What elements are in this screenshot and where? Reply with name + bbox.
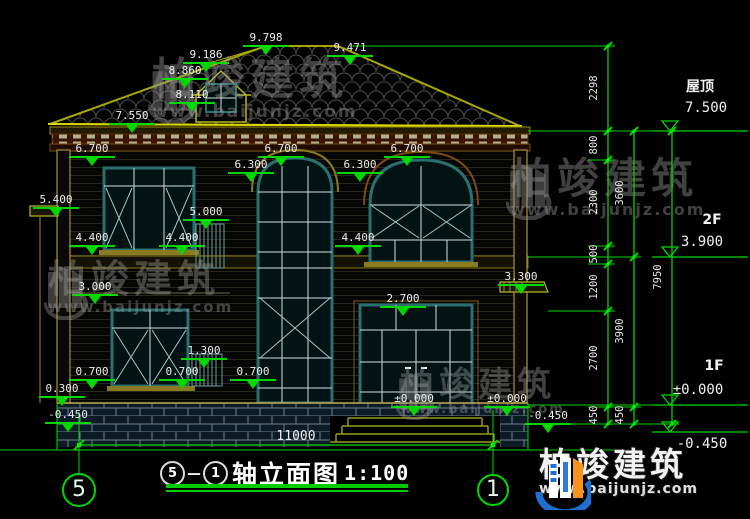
elevation-marker: 9.798 [231, 32, 301, 55]
elevation-marker: 8.860 [150, 65, 220, 88]
elevation-value: ±0.000 [394, 392, 434, 405]
elevation-value: 5.000 [189, 205, 222, 218]
chain-dimension-value: 7950 [652, 245, 664, 309]
marker-triangle-icon [126, 125, 138, 133]
marker-triangle-icon [179, 80, 191, 88]
elevation-value: 4.400 [341, 231, 374, 244]
elevation-marker: 3.300 [486, 271, 556, 294]
elevation-value: 1.300 [187, 344, 220, 357]
marker-triangle-icon [89, 296, 101, 304]
drawing-scale: 1:100 [344, 461, 409, 485]
elevation-value: 2.700 [386, 292, 419, 305]
elevation-marker: 0.300 [27, 383, 97, 406]
elevation-marker: 6.300 [325, 159, 395, 182]
elevation-marker: 4.400 [147, 232, 217, 255]
marker-triangle-icon [354, 174, 366, 182]
elevation-value: 6.300 [234, 158, 267, 171]
elevation-marker: 6.700 [57, 143, 127, 166]
level-elevation: ±0.000 [656, 382, 740, 398]
marker-triangle-icon [542, 425, 554, 433]
elevation-marker: 5.000 [171, 206, 241, 229]
marker-triangle-icon [50, 209, 62, 217]
elevation-value: 6.700 [75, 142, 108, 155]
elevation-marker: 8.110 [157, 89, 227, 112]
marker-triangle-icon [62, 424, 74, 432]
marker-triangle-icon [245, 174, 257, 182]
marker-triangle-icon [515, 286, 527, 294]
overall-dimension: 11000 [246, 429, 346, 444]
elevation-value: -0.450 [528, 409, 568, 422]
level-name: 屋顶 [664, 76, 736, 96]
marker-triangle-icon [176, 247, 188, 255]
cad-elevation-sheet: 柏竣建筑 www.baijunjz.com 柏竣建筑 www.baijunjz.… [0, 0, 750, 519]
elevation-marker: 2.700 [368, 293, 438, 316]
elevation-marker: 3.000 [60, 281, 130, 304]
marker-triangle-icon [344, 57, 356, 65]
marker-triangle-icon [86, 158, 98, 166]
title-underline-thin [166, 490, 408, 492]
elevation-marker: ±0.000 [379, 393, 449, 416]
level-elevation: 3.900 [660, 234, 744, 250]
elevation-value: 3.000 [78, 280, 111, 293]
elevation-marker: 4.400 [57, 232, 127, 255]
elevation-value: -0.450 [48, 408, 88, 421]
elevation-value: 6.700 [390, 142, 423, 155]
marker-triangle-icon [200, 221, 212, 229]
axis-bubble-5: 5 [63, 477, 95, 502]
elevation-value: 8.860 [168, 64, 201, 77]
marker-triangle-icon [401, 158, 413, 166]
annotation-layer: 11000 5 1 5 － 1 轴立面图 1:100 柏 [0, 0, 750, 519]
elevation-value: 0.700 [165, 365, 198, 378]
chain-dimension-value: 450 [588, 383, 600, 447]
marker-triangle-icon [397, 308, 409, 316]
elevation-value: 4.400 [75, 231, 108, 244]
marker-triangle-icon [501, 408, 513, 416]
elevation-marker: -0.450 [513, 410, 583, 433]
level-elevation: 7.500 [664, 100, 748, 116]
level-name: 1F [678, 358, 750, 374]
marker-triangle-icon [260, 47, 272, 55]
elevation-value: 0.700 [236, 365, 269, 378]
elevation-marker: 0.700 [147, 366, 217, 389]
elevation-value: 8.110 [175, 88, 208, 101]
elevation-value: 0.700 [75, 365, 108, 378]
elevation-value: 9.471 [333, 41, 366, 54]
chain-dimension-value: 800 [588, 113, 600, 177]
chain-dimension-value: 3900 [614, 299, 626, 363]
elevation-value: ±0.000 [487, 392, 527, 405]
chain-dimension-value: 2298 [588, 56, 600, 120]
marker-triangle-icon [56, 398, 68, 406]
elevation-value: 6.300 [343, 158, 376, 171]
elevation-marker: 0.700 [218, 366, 288, 389]
elevation-marker: 6.300 [216, 159, 286, 182]
level-name: 2F [676, 212, 748, 228]
axis-bubble-1: 1 [477, 477, 509, 502]
chain-dimension-value: 450 [614, 383, 626, 447]
chain-dimension-value: 3600 [614, 161, 626, 225]
elevation-marker: -0.450 [33, 409, 103, 432]
brand-logo-icon [533, 448, 591, 510]
elevation-marker: 7.550 [97, 110, 167, 133]
elevation-value: 3.300 [504, 270, 537, 283]
brand-logo-block: 柏竣建筑 www.baijunjz.com [533, 448, 698, 497]
title-axis-right-circle: 1 [203, 461, 228, 486]
marker-triangle-icon [186, 104, 198, 112]
elevation-value: 9.186 [189, 48, 222, 61]
elevation-value: 0.300 [45, 382, 78, 395]
elevation-value: 6.700 [264, 142, 297, 155]
elevation-marker: 5.400 [21, 194, 91, 217]
elevation-value: 5.400 [39, 193, 72, 206]
elevation-value: 7.550 [115, 109, 148, 122]
marker-triangle-icon [247, 381, 259, 389]
elevation-value: 9.798 [249, 31, 282, 44]
title-underline-thick [166, 484, 408, 488]
marker-triangle-icon [176, 381, 188, 389]
elevation-value: 4.400 [165, 231, 198, 244]
title-axis-left-circle: 5 [160, 461, 185, 486]
elevation-marker: 9.471 [315, 42, 385, 65]
marker-triangle-icon [408, 408, 420, 416]
elevation-marker: 4.400 [323, 232, 393, 255]
chain-dimension-value: 1200 [588, 255, 600, 319]
title-dash: － [186, 461, 202, 485]
marker-triangle-icon [352, 247, 364, 255]
chain-dimension-value: 2700 [588, 326, 600, 390]
marker-triangle-icon [86, 247, 98, 255]
